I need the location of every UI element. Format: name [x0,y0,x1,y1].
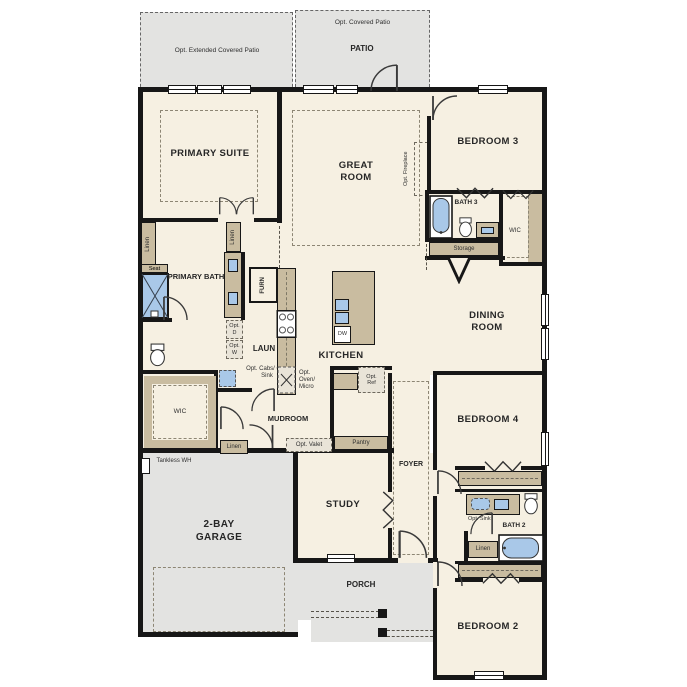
window-primary-3 [223,85,251,94]
opt-ref-label: Opt. Ref [363,374,381,387]
toilet-bath3 [458,217,473,238]
primary-bath-label: PRIMARY BATH [166,272,226,281]
window-dining-1 [541,294,549,326]
door-zigzag-wic3 [502,188,534,201]
wic-right-shelving [528,194,542,262]
door-arc-primary-bath [163,296,188,321]
storage-label: Storage [453,246,474,253]
furnace-label: FURN [260,277,267,294]
wall-wic-right-bottom [499,262,546,266]
door-zigzag-bedroom2-closet [482,571,520,586]
porch-step-2b [387,636,433,638]
window-bedroom3 [478,85,508,94]
mudroom-linen-label: Linen [227,444,242,451]
porch-notch [298,620,311,642]
storage-shelf: Storage [429,242,499,256]
wall-primary-great [277,87,282,223]
counter-by-ref [333,373,358,390]
window-study [327,554,355,563]
bath2-opt-sink [471,498,490,510]
stove [276,310,297,338]
bathtub-2 [498,534,544,562]
bath2-sink [494,499,509,510]
door-arc-bath2 [437,470,462,495]
door-arc-primary-2 [236,193,254,219]
porch-post-1 [378,609,387,618]
study-label: STUDY [310,499,376,511]
wall-foyer-left-upper [388,373,392,492]
bathtub-3 [429,195,453,239]
opt-fireplace-label: Opt. Fireplace [403,142,413,196]
porch-post-2 [378,628,387,637]
window-bedroom4 [541,432,549,466]
opt-washer-box: Opt. W [226,340,243,359]
mudroom-linen: Linen [220,440,248,454]
tankless-wh-unit [141,458,150,474]
bath2-linen-label: Linen [476,546,491,553]
vanity-sink-2 [228,292,238,305]
garage-label: 2-BAY GARAGE [180,518,258,544]
pantry-shelf: Pantry [334,436,388,450]
wic-right-dash [507,196,529,258]
wall-right [542,87,547,680]
opening-great-dining [426,244,428,270]
door-zigzag-study [381,491,395,529]
opt-dryer-label: Opt. D [227,323,242,336]
door-arc-laundry [250,388,276,412]
wall-garage-right [293,448,298,563]
door-arc-porch-hall [437,561,463,587]
window-primary-1 [168,85,196,94]
porch-step-2a [387,630,433,632]
mudroom-label: MUDROOM [256,414,320,423]
linen-left-label: Linen [145,237,152,252]
bedroom4-label: BEDROOM 4 [440,414,536,426]
porch-step-1b [311,617,379,619]
opening-kitchen-hall [279,226,281,268]
opt-oven-box [277,366,296,394]
great-room-label: GREAT ROOM [330,160,382,185]
bath2-label: BATH 2 [498,522,530,530]
wall-bedroom4-top [433,371,546,375]
window-greatroom-1 [303,85,334,94]
patio-label: PATIO [330,44,394,54]
vanity-sink-1 [228,259,238,272]
tankless-wh-label: Tankless WH [154,458,194,465]
door-zigzag-bedroom4-closet [484,459,522,474]
wall-primary-bottom-r [254,218,281,222]
wall-garage-bottom [138,632,298,637]
wall-bedroom3-left [427,116,431,192]
seat-ledge: Seat [141,264,168,273]
island-sink-1 [335,299,349,311]
floor-plan: Opt. Extended Covered Patio Opt. Covered… [0,0,687,687]
garage-bay-outline [153,567,285,632]
wic-left-label: WIC [158,408,202,415]
door-arc-front-door [398,530,428,559]
door-zigzag-bath3 [456,186,494,200]
opt-oven-label: Opt. Oven/ Micro [299,370,327,391]
bath3-vanity [476,222,499,238]
bedroom2-label: BEDROOM 2 [440,621,536,633]
pantry-label: Pantry [352,440,369,447]
furnace-closet: FURN [249,267,278,303]
opt-dryer-box: Opt. D [226,320,243,339]
door-arc-primary-1 [219,193,237,219]
bedroom4-closet-rod [462,478,538,480]
kitchen-label: KITCHEN [310,350,372,362]
seat-label: Seat [149,266,160,272]
window-bedroom2 [474,671,504,680]
wall-bedroom2-top-r [519,578,546,582]
window-primary-2 [197,85,222,94]
door-arc-bedroom3 [432,95,458,121]
opening-dining-arch [446,257,472,284]
bath3-sink [481,227,494,234]
wall-wing-left [433,373,437,680]
opt-laundry-sink [219,370,236,387]
linen-mid-closet: Linen [226,222,241,252]
door-arc-patio [370,64,398,92]
island-sink-2 [335,312,349,324]
toilet-bath2 [523,492,539,516]
opt-covered-patio-label: Opt. Covered Patio [300,19,425,26]
toilet-primary [149,342,166,368]
dining-room-label: DINING ROOM [458,310,516,335]
opt-valet-box: Opt. Valet [286,438,332,452]
porch-step-1a [311,611,379,613]
extended-patio-label: Opt. Extended Covered Patio [146,47,288,54]
bedroom3-label: BEDROOM 3 [440,136,536,148]
opt-valet-label: Opt. Valet [296,442,322,449]
porch-label: PORCH [330,580,392,590]
door-arc-bath2-tub [470,512,493,535]
bath2-linen: Linen [468,541,498,558]
window-greatroom-2 [336,85,358,94]
dishwasher-label: DW [338,331,347,337]
dishwasher: DW [334,326,351,343]
bath3-label: BATH 3 [452,199,480,207]
opt-fireplace-outline [414,142,428,196]
window-dining-2 [541,328,549,360]
wall-foyer-left-lower [388,528,392,560]
foyer-label: FOYER [392,461,430,470]
door-arc-mudroom-hall [220,406,244,430]
linen-left-closet: Linen [141,222,156,266]
wic-right-label: WIC [500,228,530,235]
opt-ref-box: Opt. Ref [358,367,385,393]
primary-suite-label: PRIMARY SUITE [168,148,252,160]
wall-left [138,87,143,637]
opt-washer-label: Opt. W [227,343,242,356]
wall-wic-left-top [138,370,218,374]
wall-bedroom4-bottom-r [521,466,546,470]
door-arc-garage-entry [247,424,275,449]
wall-mudroom-top [218,388,252,392]
linen-mid-label: Linen [230,230,237,245]
